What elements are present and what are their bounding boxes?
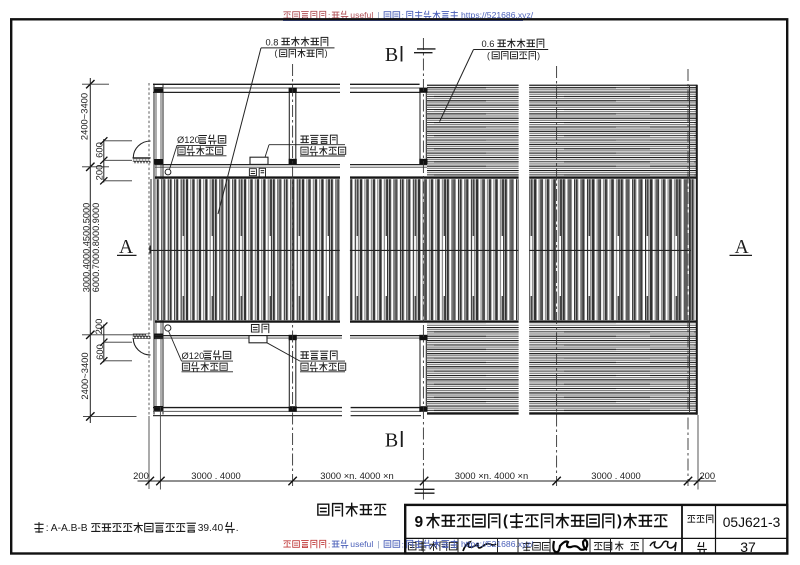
svg-text:3000 . 4000: 3000 . 4000 bbox=[591, 470, 641, 481]
svg-text:600: 600 bbox=[94, 344, 105, 360]
svg-text:200: 200 bbox=[93, 165, 104, 181]
svg-text:2400~3400: 2400~3400 bbox=[79, 93, 90, 140]
svg-text::: : bbox=[402, 539, 404, 549]
svg-text:useful: useful bbox=[350, 539, 373, 549]
svg-text:(: ( bbox=[275, 48, 278, 58]
svg-text:6000.7000.8000.9000: 6000.7000.8000.9000 bbox=[91, 203, 101, 292]
svg-text:): ) bbox=[537, 50, 540, 60]
svg-text:Ø120: Ø120 bbox=[177, 135, 200, 145]
svg-text:|: | bbox=[377, 539, 379, 549]
svg-text:3000 . 4000: 3000 . 4000 bbox=[191, 470, 241, 481]
svg-text::: : bbox=[328, 539, 330, 549]
svg-text:): ) bbox=[617, 514, 622, 530]
svg-text:2400~3400: 2400~3400 bbox=[79, 352, 90, 399]
svg-text:B: B bbox=[385, 429, 398, 451]
svg-text:https://521686.xyz/: https://521686.xyz/ bbox=[461, 539, 534, 549]
svg-text:39.40: 39.40 bbox=[198, 523, 224, 534]
svg-text:3000 ×n. 4000 ×n: 3000 ×n. 4000 ×n bbox=[320, 470, 394, 481]
svg-text:200: 200 bbox=[93, 319, 104, 335]
svg-text:600: 600 bbox=[93, 142, 104, 158]
svg-text:0.6: 0.6 bbox=[482, 39, 495, 49]
svg-text:3000 ×n. 4000 ×n: 3000 ×n. 4000 ×n bbox=[455, 470, 529, 481]
svg-text:0.8: 0.8 bbox=[266, 37, 279, 47]
svg-text:200: 200 bbox=[133, 470, 149, 481]
svg-text:: A-A.B-B: : A-A.B-B bbox=[46, 523, 88, 534]
svg-text:): ) bbox=[325, 48, 328, 58]
svg-text:05J621-3: 05J621-3 bbox=[723, 515, 781, 530]
svg-text:(: ( bbox=[503, 514, 508, 530]
svg-text:37: 37 bbox=[740, 539, 756, 555]
svg-text:B: B bbox=[385, 44, 398, 66]
svg-text:(: ( bbox=[487, 50, 490, 60]
svg-text:9: 9 bbox=[415, 514, 424, 531]
svg-text:200: 200 bbox=[699, 470, 715, 481]
svg-text:.: . bbox=[236, 523, 239, 534]
svg-text:Ø120: Ø120 bbox=[182, 351, 205, 361]
